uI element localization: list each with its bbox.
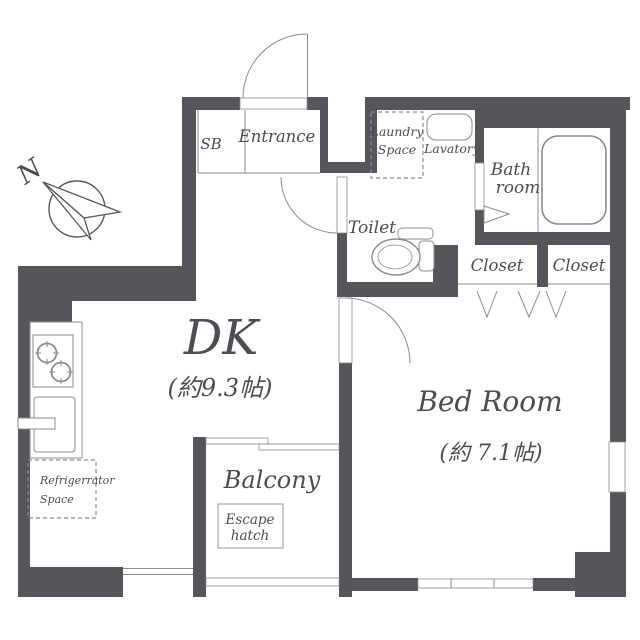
wall-right-lower [610,492,626,552]
closet-fold-mark-1 [477,291,497,317]
room-label-entrance: Entrance [238,127,316,146]
refrigerator-dashed-box [28,460,96,518]
room-label-lavatory: Lavatory [423,141,481,156]
balcony-sliding-window-leaf2 [259,444,339,450]
wall-bedroom-left [339,363,352,597]
wall-bath-partition-lower [475,210,484,232]
label-escape-hatch-1: Escape [224,512,274,528]
toilet-cistern-icon [398,228,433,239]
closet-fold-mark-3 [546,291,566,317]
bedroom-door-arc [345,298,410,363]
wall-entrance-left [182,97,196,268]
wall-entrance-top-right [307,97,328,110]
compass-needle-upper [43,182,120,218]
entrance-door-arc [243,34,307,98]
toilet-bowl-icon [372,239,420,275]
label-escape-hatch-2: hatch [231,528,269,544]
label-refrigerator-2: Space [40,493,74,506]
wall-bedroom-bottom-left [352,578,418,591]
room-label-dk-size: (約9.3帖) [168,374,273,402]
closet-fold-mark-2 [518,291,540,317]
label-refrigerator-1: Refrigerrator [39,474,115,487]
room-label-balcony: Balcony [223,466,321,494]
room-label-bath-1: Bath [490,160,531,180]
room-label-closet-right: Closet [553,256,606,275]
floorplan-svg: N SB Entrance Laundry Space Lavatory Bat… [0,0,640,640]
balcony-railing [206,578,339,586]
wall-bedroom-bottom-right [533,578,575,591]
wall-bath-top-band [484,110,610,128]
wall-closet-divider [537,245,548,287]
wall-right-upper [610,110,626,442]
floorplan-page: N SB Entrance Laundry Space Lavatory Bat… [0,0,640,640]
wall-bottom-right-block [575,552,626,597]
bedroom-door-opening [339,298,352,363]
toilet-door-arc [281,177,337,233]
room-label-dk: DK [183,310,261,366]
room-label-laundry-2: Space [378,142,416,157]
bath-door-triangle [484,206,509,223]
wall-bottom-left-block [18,567,123,597]
toilet-tank-icon [419,241,434,271]
room-label-bath-2: room [496,178,541,198]
balcony-sliding-window-leaf1 [206,438,268,444]
room-label-bedroom: Bed Room [416,385,562,418]
wall-top [365,97,630,110]
toilet-door-opening [337,177,347,233]
room-label-bedroom-size: (約 7.1帖) [439,441,542,466]
room-label-laundry-1: Laundry [370,124,425,139]
room-label-sb: SB [200,135,221,153]
bedroom-bottom-window [418,579,533,588]
compass-icon [43,181,120,240]
bath-door-opening [475,163,484,210]
faucet-icon [18,418,55,429]
labels: N SB Entrance Laundry Space Lavatory Bat… [11,124,605,544]
wall-left [18,301,30,568]
wall-dk-topleft-horizontal [18,266,196,301]
wall-closet-left-side [433,245,458,297]
bedroom-right-window [609,442,625,492]
wall-toilet-bottom [345,282,443,297]
bathtub-icon [542,136,606,224]
wall-balcony-left [193,437,206,597]
compass-north-label: N [11,152,49,191]
entrance-door-opening [240,98,307,109]
lavatory-sink-icon [427,114,472,140]
room-label-closet-left: Closet [471,256,524,275]
room-label-toilet: Toilet [348,218,396,238]
wall-entrance-right [320,110,328,163]
wall-bath-bottom [475,232,626,245]
kitchen-counter [30,322,82,458]
